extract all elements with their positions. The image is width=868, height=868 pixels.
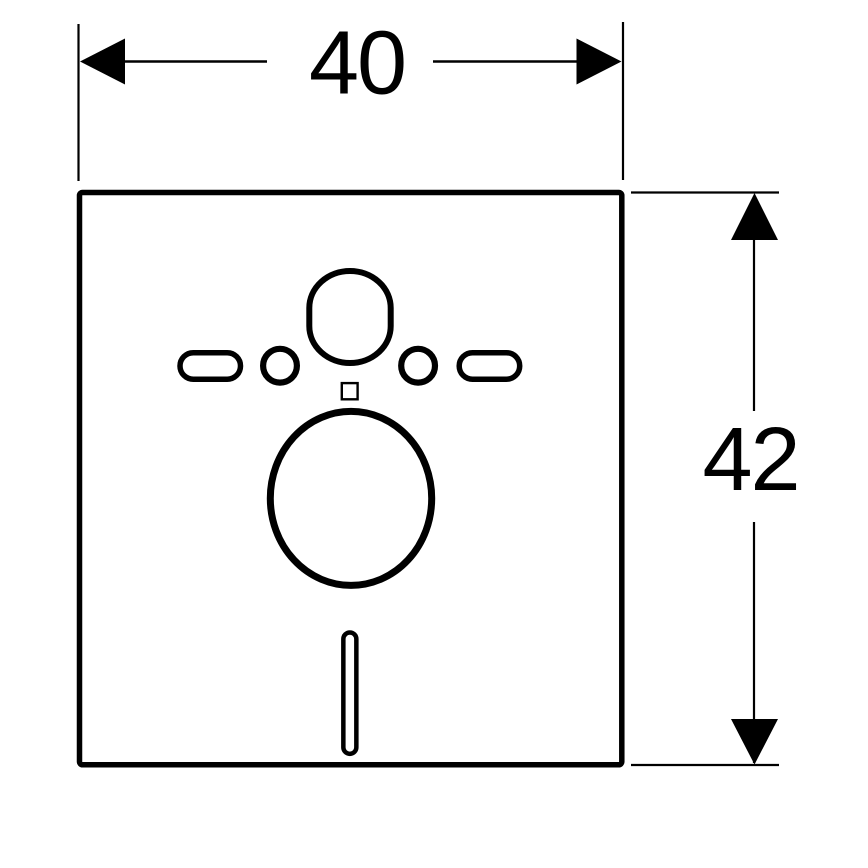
svg-text:42: 42 xyxy=(702,410,798,510)
svg-text:40: 40 xyxy=(309,14,405,114)
